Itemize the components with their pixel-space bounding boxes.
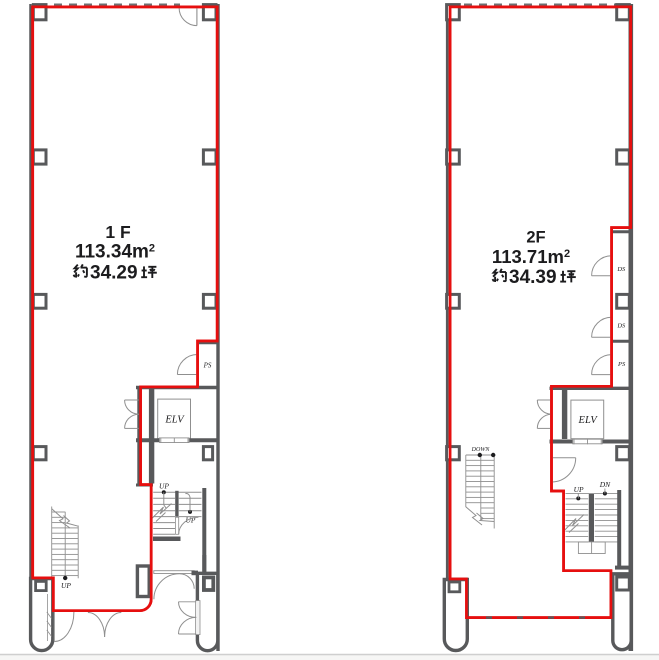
- svg-text:PS: PS: [203, 362, 212, 370]
- svg-text:UP: UP: [159, 482, 169, 491]
- svg-text:1 F: 1 F: [105, 222, 131, 242]
- svg-text:34.29: 34.29: [90, 262, 138, 283]
- svg-text:DS: DS: [616, 322, 626, 329]
- svg-text:DS: DS: [616, 266, 626, 273]
- svg-text:ELV: ELV: [578, 415, 599, 426]
- svg-text:DN: DN: [599, 480, 611, 489]
- svg-text:113.71m2: 113.71m2: [492, 246, 570, 267]
- svg-text:113.34m2: 113.34m2: [75, 242, 155, 263]
- svg-text:2F: 2F: [526, 229, 545, 247]
- svg-text:UP: UP: [574, 485, 584, 494]
- svg-text:UP: UP: [61, 581, 71, 590]
- svg-text:PS: PS: [617, 361, 626, 368]
- svg-text:34.39: 34.39: [509, 267, 557, 288]
- svg-text:DOWN: DOWN: [471, 447, 491, 453]
- svg-text:ELV: ELV: [164, 415, 185, 426]
